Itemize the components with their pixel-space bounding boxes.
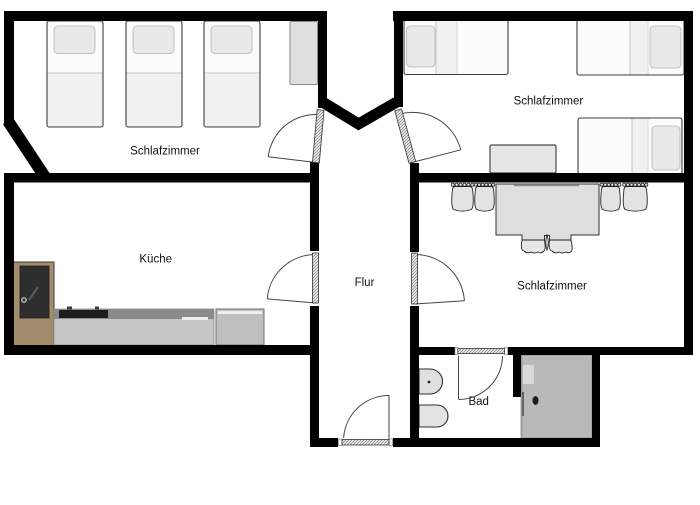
svg-text:Schlafzimmer: Schlafzimmer — [517, 281, 587, 293]
svg-text:Schlafzimmer: Schlafzimmer — [514, 95, 584, 107]
svg-text:Schlafzimmer: Schlafzimmer — [130, 146, 200, 158]
svg-text:Flur: Flur — [355, 277, 375, 289]
svg-text:Küche: Küche — [139, 254, 172, 266]
